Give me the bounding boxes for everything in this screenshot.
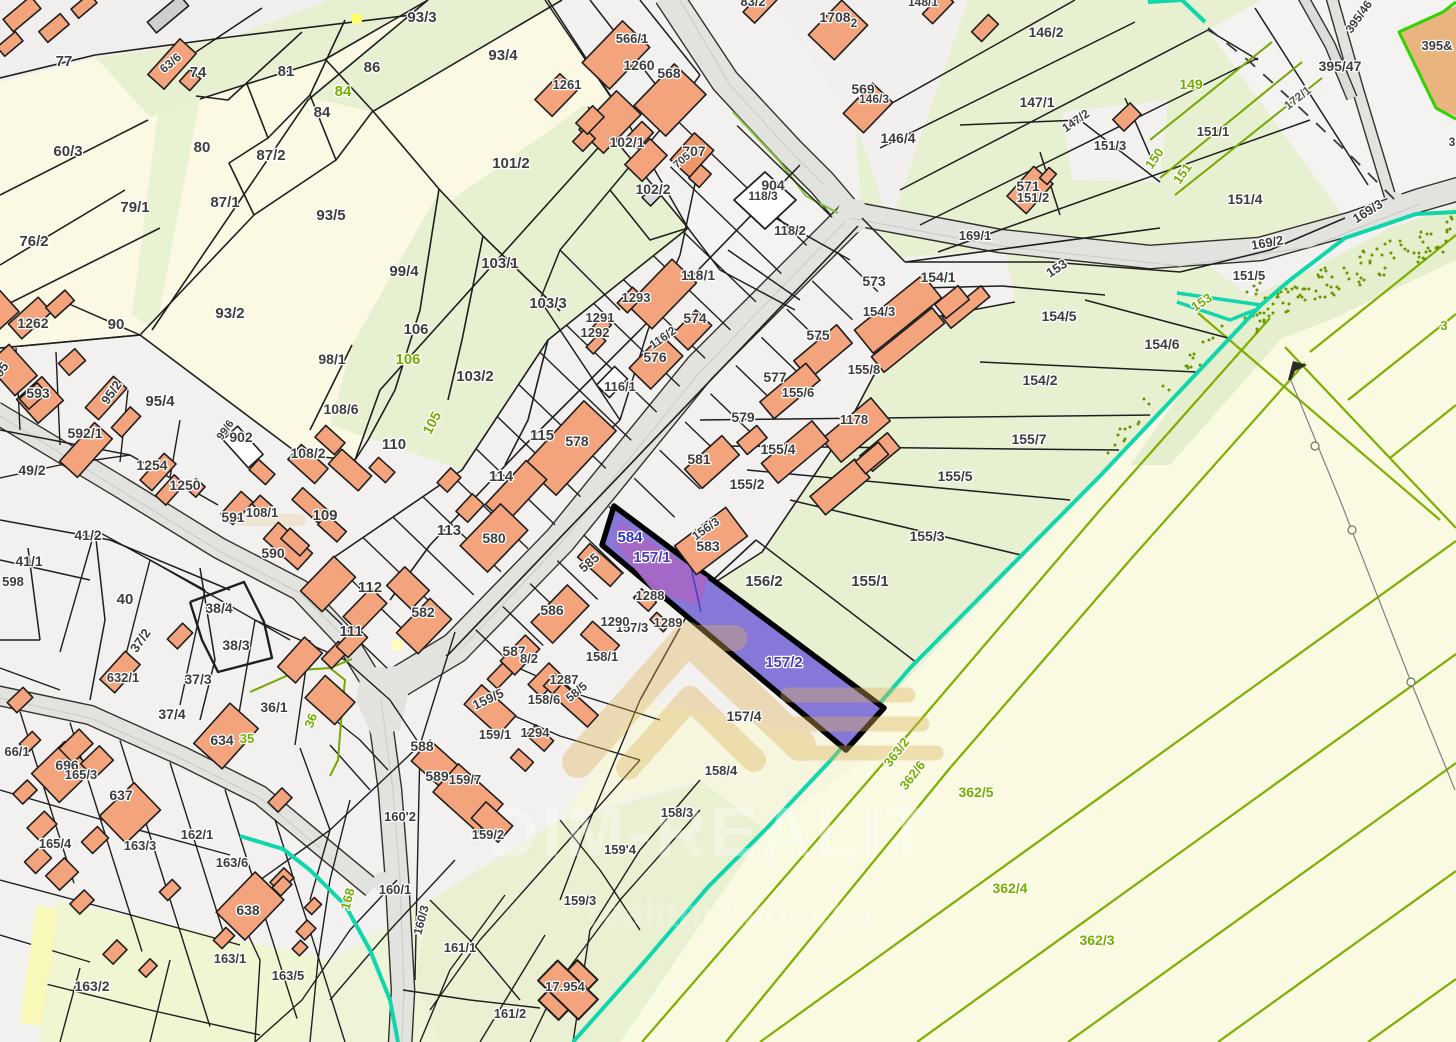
svg-text:362/5: 362/5 [958, 784, 993, 800]
svg-text:162/1: 162/1 [181, 827, 214, 842]
svg-text:159/2: 159/2 [472, 827, 505, 842]
svg-text:155/1: 155/1 [851, 573, 889, 590]
svg-text:155/2: 155/2 [729, 476, 764, 492]
svg-text:38/4: 38/4 [205, 600, 232, 616]
svg-text:638: 638 [236, 902, 260, 918]
svg-text:591: 591 [221, 509, 245, 525]
svg-text:155/6: 155/6 [782, 385, 815, 400]
svg-text:111: 111 [339, 623, 362, 640]
svg-text:118/2: 118/2 [774, 223, 806, 238]
svg-text:1289: 1289 [654, 615, 683, 630]
svg-text:35: 35 [240, 731, 254, 746]
svg-text:37/4: 37/4 [158, 706, 185, 722]
svg-text:8/2: 8/2 [520, 651, 538, 666]
svg-text:165/3: 165/3 [65, 767, 98, 782]
svg-text:98/1: 98/1 [318, 351, 345, 367]
svg-text:163/5: 163/5 [272, 968, 305, 983]
svg-text:148/1: 148/1 [908, 0, 938, 9]
svg-text:598: 598 [2, 574, 24, 589]
svg-text:154/6: 154/6 [1144, 336, 1179, 352]
svg-text:1288: 1288 [636, 588, 665, 603]
svg-text:151/4: 151/4 [1227, 191, 1262, 207]
svg-text:157/2: 157/2 [765, 654, 803, 671]
svg-text:579: 579 [731, 409, 755, 425]
svg-text:902: 902 [229, 429, 253, 445]
svg-text:582: 582 [411, 604, 435, 620]
svg-text:103/3: 103/3 [529, 295, 567, 312]
svg-text:362/4: 362/4 [992, 880, 1027, 896]
svg-text:108/6: 108/6 [323, 401, 358, 417]
svg-text:77: 77 [56, 53, 73, 70]
svg-text:1292: 1292 [581, 325, 610, 340]
svg-text:1261: 1261 [553, 77, 582, 92]
svg-text:158/3: 158/3 [661, 805, 694, 820]
svg-text:41/1: 41/1 [15, 553, 42, 569]
svg-text:157/1: 157/1 [633, 549, 671, 566]
svg-text:169/1: 169/1 [959, 228, 992, 243]
svg-text:66/1: 66/1 [4, 744, 29, 759]
svg-text:584: 584 [617, 529, 643, 546]
svg-text:2: 2 [851, 16, 858, 30]
svg-text:154/1: 154/1 [920, 269, 955, 285]
svg-text:155/5: 155/5 [937, 468, 972, 484]
svg-text:103/2: 103/2 [456, 368, 494, 385]
svg-text:17.954: 17.954 [545, 979, 586, 994]
svg-text:589: 589 [425, 768, 449, 784]
svg-text:99/4: 99/4 [389, 263, 419, 280]
svg-text:37/3: 37/3 [184, 671, 211, 687]
svg-text:154/5: 154/5 [1041, 308, 1076, 324]
svg-text:159/7: 159/7 [449, 772, 482, 787]
svg-text:41/2: 41/2 [74, 527, 101, 543]
svg-text:114: 114 [489, 468, 514, 485]
svg-text:86: 86 [364, 59, 381, 76]
svg-text:1291: 1291 [586, 310, 615, 325]
svg-text:116/1: 116/1 [604, 379, 636, 394]
svg-text:155/8: 155/8 [848, 362, 881, 377]
svg-text:1708: 1708 [819, 9, 850, 25]
svg-text:115: 115 [530, 427, 554, 444]
svg-text:90: 90 [108, 316, 125, 333]
svg-text:93/2: 93/2 [215, 305, 244, 322]
svg-text:84: 84 [314, 104, 331, 121]
svg-text:80: 80 [194, 139, 211, 156]
svg-text:112: 112 [358, 579, 382, 596]
svg-text:161/2: 161/2 [494, 1006, 527, 1021]
svg-text:1178: 1178 [840, 412, 868, 427]
svg-text:36/1: 36/1 [260, 699, 287, 715]
svg-text:163/6: 163/6 [216, 855, 249, 870]
svg-text:79/1: 79/1 [120, 199, 149, 216]
svg-text:1290: 1290 [601, 614, 630, 629]
svg-text:586: 586 [540, 602, 564, 618]
svg-text:590: 590 [261, 545, 285, 561]
svg-text:1260: 1260 [623, 57, 654, 73]
svg-text:158/1: 158/1 [586, 649, 619, 664]
svg-text:637: 637 [109, 787, 133, 803]
svg-text:151/1: 151/1 [1197, 124, 1230, 139]
svg-text:159/3: 159/3 [564, 893, 597, 908]
svg-text:575: 575 [806, 327, 830, 343]
svg-text:634: 634 [210, 732, 234, 748]
svg-text:113: 113 [437, 522, 461, 539]
svg-text:40: 40 [117, 591, 134, 608]
svg-text:106: 106 [403, 321, 428, 338]
svg-text:87/2: 87/2 [256, 147, 285, 164]
svg-text:1254: 1254 [136, 457, 167, 473]
svg-text:573: 573 [862, 273, 886, 289]
svg-text:1250: 1250 [169, 477, 200, 493]
svg-text:160'2: 160'2 [384, 809, 416, 824]
svg-text:102/1: 102/1 [609, 134, 644, 150]
svg-text:155/4: 155/4 [760, 441, 795, 457]
svg-text:87/1: 87/1 [210, 194, 239, 211]
svg-text:362/3: 362/3 [1079, 932, 1114, 948]
svg-text:106: 106 [395, 351, 420, 368]
svg-text:110: 110 [382, 436, 406, 453]
svg-text:103/1: 103/1 [481, 255, 519, 272]
svg-text:149: 149 [1179, 76, 1203, 92]
svg-text:DIM-REALIT: DIM-REALIT [488, 793, 932, 871]
svg-text:76/2: 76/2 [19, 233, 48, 250]
svg-text:146/3: 146/3 [859, 92, 889, 106]
svg-text:146/4: 146/4 [880, 130, 915, 146]
svg-text:102/2: 102/2 [635, 181, 670, 197]
svg-text:574: 574 [683, 310, 707, 326]
svg-text:151/3: 151/3 [1094, 138, 1127, 153]
svg-text:592/1: 592/1 [67, 425, 102, 441]
svg-text:84: 84 [335, 83, 352, 100]
svg-text:108/2: 108/2 [290, 445, 325, 461]
svg-text:576: 576 [643, 349, 667, 365]
svg-text:161/1: 161/1 [444, 940, 477, 955]
svg-text:583: 583 [696, 538, 720, 554]
svg-text:163/3: 163/3 [124, 838, 157, 853]
svg-text:109: 109 [312, 507, 337, 524]
svg-text:159'4: 159'4 [604, 842, 637, 857]
svg-text:581: 581 [687, 451, 711, 467]
svg-text:165/4: 165/4 [39, 836, 72, 851]
svg-text:163/2: 163/2 [74, 978, 109, 994]
svg-text:395/47: 395/47 [1319, 58, 1362, 74]
svg-text:3: 3 [1449, 135, 1456, 149]
svg-text:566/1: 566/1 [616, 31, 649, 46]
svg-text:158/6: 158/6 [528, 692, 561, 707]
svg-text:3: 3 [1440, 318, 1447, 333]
svg-text:632/1: 632/1 [107, 670, 140, 685]
svg-text:1293: 1293 [622, 290, 651, 305]
svg-text:160/1: 160/1 [379, 882, 412, 897]
svg-text:155/3: 155/3 [909, 528, 944, 544]
svg-text:realitni kancelar: realitni kancelar [587, 893, 877, 935]
svg-text:395&: 395& [1421, 38, 1452, 53]
svg-text:108/1: 108/1 [246, 505, 279, 520]
svg-text:151/5: 151/5 [1233, 268, 1266, 283]
svg-text:578: 578 [565, 433, 589, 449]
svg-text:157/4: 157/4 [726, 708, 761, 724]
svg-text:83/2: 83/2 [740, 0, 765, 9]
svg-text:1262: 1262 [17, 315, 48, 331]
svg-text:93/3: 93/3 [407, 9, 436, 26]
svg-text:81: 81 [278, 63, 295, 80]
svg-text:154/3: 154/3 [863, 304, 896, 319]
svg-text:571: 571 [1016, 178, 1040, 194]
svg-text:158/4: 158/4 [705, 763, 738, 778]
svg-text:95/4: 95/4 [145, 393, 175, 410]
svg-text:577: 577 [763, 369, 787, 385]
svg-text:163/1: 163/1 [214, 951, 247, 966]
svg-text:74: 74 [190, 64, 207, 81]
svg-text:154/2: 154/2 [1022, 372, 1057, 388]
svg-text:155/7: 155/7 [1011, 431, 1046, 447]
svg-text:156/2: 156/2 [745, 573, 783, 590]
svg-text:593: 593 [26, 385, 50, 401]
svg-text:49/2: 49/2 [18, 462, 45, 478]
svg-text:146/2: 146/2 [1028, 24, 1063, 40]
svg-text:93/5: 93/5 [316, 207, 345, 224]
svg-text:1294: 1294 [521, 725, 551, 740]
svg-text:580: 580 [482, 530, 506, 546]
svg-text:101/2: 101/2 [492, 155, 530, 172]
svg-text:588: 588 [410, 738, 434, 754]
svg-text:93/4: 93/4 [488, 47, 518, 64]
svg-text:118/1: 118/1 [681, 267, 715, 283]
svg-text:60/3: 60/3 [53, 143, 82, 160]
svg-text:147/1: 147/1 [1019, 94, 1054, 110]
svg-text:38/3: 38/3 [222, 637, 249, 653]
svg-text:568: 568 [657, 65, 681, 81]
svg-text:159/1: 159/1 [479, 727, 512, 742]
svg-text:118/3: 118/3 [748, 189, 778, 203]
